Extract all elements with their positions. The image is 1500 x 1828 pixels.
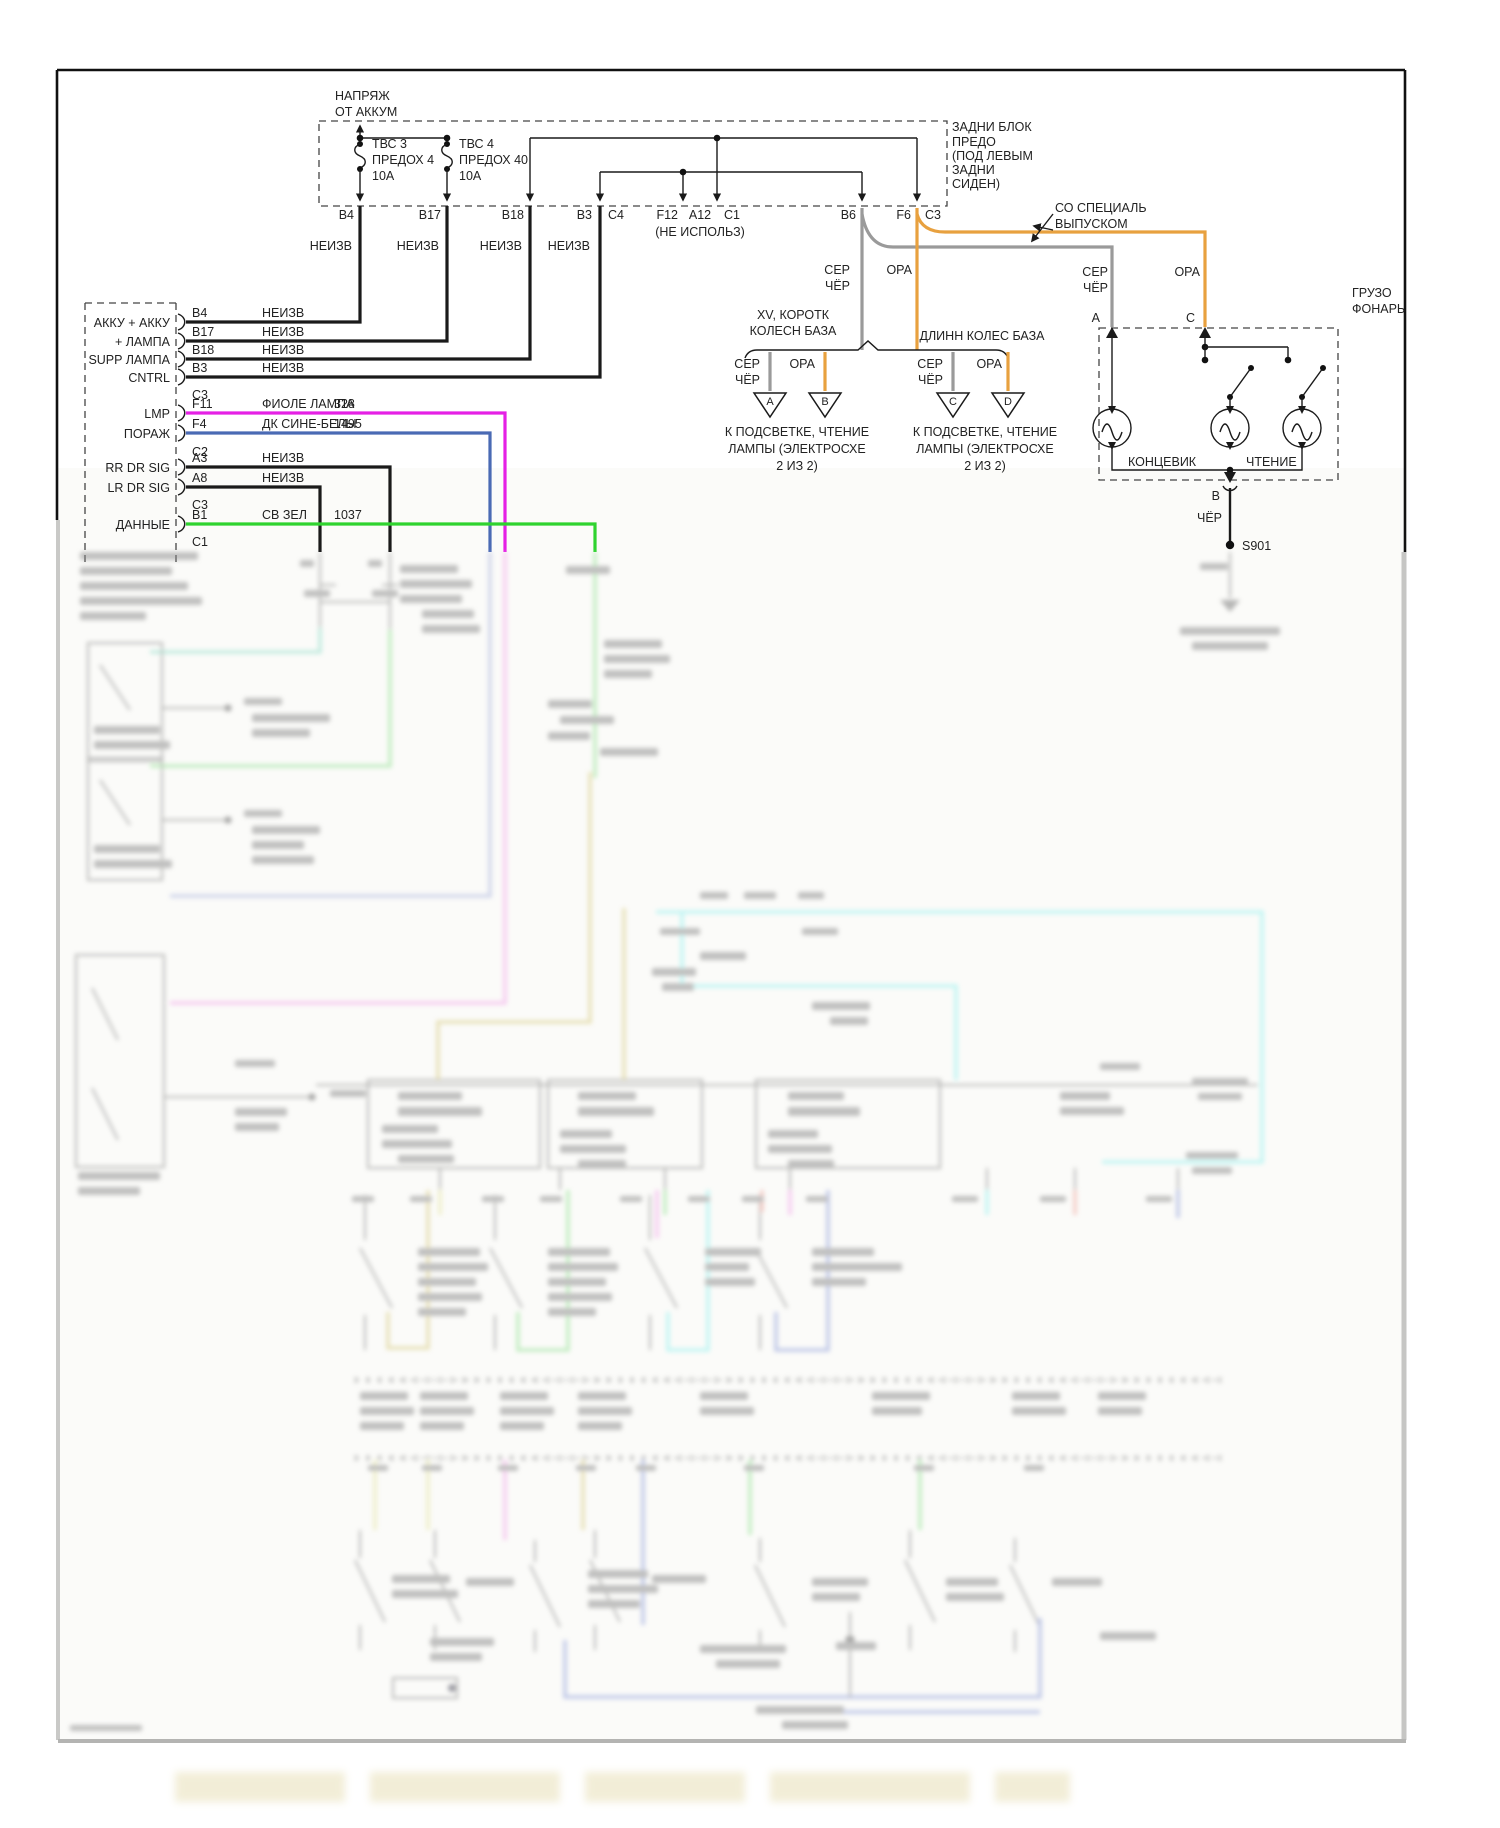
module-pin: B17 [192,325,214,339]
module-row-label: АККУ + АККУ [94,316,170,330]
fuse-tbc4: ТВС 4 ПРЕДОХ 40 10А [442,137,528,200]
module-row-label: CNTRL [128,371,170,385]
wire-color-label: СЕР [1082,265,1108,279]
module-wire: НЕИЗВ [262,451,304,465]
rear-fuse-block: НАПРЯЖ ОТ АККУМ ЗАДНИ БЛОК ПРЕДО (ПОД ЛЕ… [310,89,1033,253]
module-row-label: ДАННЫЕ [116,518,170,532]
wire-color-label: ЧЁР [1197,511,1222,525]
module-circuit: 328 [334,397,355,411]
wire-color-label: ЧЁР [1083,281,1108,295]
module-wire: НЕИЗВ [262,471,304,485]
triangle-letter: A [766,396,774,408]
destination-note: ЛАМПЫ (ЭЛЕКТРОСХЕ [916,442,1053,456]
module-circuit: 1495 [334,417,362,431]
destination-note: К ПОДСВЕТКЕ, ЧТЕНИЕ [725,425,869,439]
pin-f12: F12 [656,208,678,222]
destination-note: ЛАМПЫ (ЭЛЕКТРОСХЕ [728,442,865,456]
reading-label: ЧТЕНИЕ [1246,455,1297,469]
wire-color-label: ОРА [886,263,912,277]
not-used-note: (НЕ ИСПОЛЬЗ) [655,225,745,239]
triangle-letter: C [949,396,957,408]
wire-unknown-label: НЕИЗВ [548,239,590,253]
fuse-tbc4-label: ПРЕДОХ 40 [459,153,528,167]
module-pin: B18 [192,343,214,357]
faded-region-background [58,468,1405,1741]
special-equipment-note: СО СПЕЦИАЛЬ ВЫПУСКОМ [1032,201,1147,241]
module-row-label: + ЛАМПА [115,335,171,349]
wire-color-label: ОРА [789,357,815,371]
wire-b4 [186,206,360,322]
module-pin: A8 [192,471,207,485]
wire-b18 [186,206,530,359]
fuse-tbc4-label: ТВС 4 [459,137,494,151]
fuse-block-title: ЗАДНИ [952,163,995,177]
module-row-label: RR DR SIG [105,461,170,475]
cargo-lamp-title: ГРУЗО [1352,286,1392,300]
pin-a12: A12 [689,208,711,222]
lamp-reading-2 [1283,406,1321,450]
triangle-letter: B [821,396,828,408]
destination-note: 2 ИЗ 2) [964,459,1006,473]
module-circuit: 1037 [334,508,362,522]
fuse-block-title: СИДЕН) [952,177,1000,191]
wire-color-label: ЧЁР [918,373,943,387]
fuse-tbc3-label: 10А [372,169,395,183]
pin-b6: B6 [841,208,856,222]
wire-color-label: ЧЁР [735,373,760,387]
wiring-diagram-page: НАПРЯЖ ОТ АККУМ ЗАДНИ БЛОК ПРЕДО (ПОД ЛЕ… [0,0,1500,1828]
courtesy-label: КОНЦЕВИК [1128,455,1197,469]
module-pin: B3 [192,361,207,375]
wire-unknown-label: НЕИЗВ [310,239,352,253]
pin-c3: C3 [925,208,941,222]
special-note-text: ВЫПУСКОМ [1055,217,1128,231]
cargo-pin-b: В [1212,489,1220,503]
battery-voltage-label: НАПРЯЖ [335,89,390,103]
pin-b17: B17 [419,208,441,222]
fuse-tbc4-label: 10А [459,169,482,183]
watermark-ghost-text [175,1772,1070,1802]
module-pin: A3 [192,451,207,465]
destination-note: К ПОДСВЕТКЕ, ЧТЕНИЕ [913,425,1057,439]
battery-voltage-label: ОТ АККУМ [335,105,397,119]
cargo-pin-a: А [1092,311,1101,325]
wire-unknown-label: НЕИЗВ [480,239,522,253]
module-row-label: LR DR SIG [107,481,170,495]
wire-color-label: ОРА [976,357,1002,371]
short-wheelbase-label: КОЛЕСН БАЗА [750,324,837,338]
pin-c1: C1 [724,208,740,222]
wire-color-label: СЕР [917,357,943,371]
splice-s901: S901 [1242,539,1271,553]
cargo-lamp-title: ФОНАРЬ [1352,302,1405,316]
module-row-label: ПОРАЖ [124,427,171,441]
module-wire: СВ ЗЕЛ [262,508,307,522]
pin-c4: C4 [608,208,624,222]
wire-color-label: СЕР [824,263,850,277]
cargo-pin-c: С [1186,311,1195,325]
wire-color-label: СЕР [734,357,760,371]
fuse-tbc3: ТВС 3 ПРЕДОХ 4 10А [355,137,434,200]
fuse-block-bus-wiring [530,135,917,200]
wiring-diagram-canvas: НАПРЯЖ ОТ АККУМ ЗАДНИ БЛОК ПРЕДО (ПОД ЛЕ… [0,0,1500,1828]
wire-color-label: ОРА [1174,265,1200,279]
wire-b3 [186,206,600,377]
fuse-block-pins: B4 B17 B18 B3 C4 F12 A12 C1 B6 F6 C3 (НЕ… [310,208,941,253]
pin-b3: B3 [577,208,592,222]
fuse-tbc3-label: ТВС 3 [372,137,407,151]
module-wire: НЕИЗВ [262,361,304,375]
module-wire: НЕИЗВ [262,325,304,339]
module-row-label: LMP [144,407,170,421]
fuse-block-title: (ПОД ЛЕВЫМ [952,149,1033,163]
fuse-block-title: ПРЕДО [952,135,996,149]
pin-f6: F6 [896,208,911,222]
brace [745,341,1008,358]
special-note-text: СО СПЕЦИАЛЬ [1055,201,1147,215]
pin-b4: B4 [339,208,354,222]
destination-note: 2 ИЗ 2) [776,459,818,473]
wire-unknown-label: НЕИЗВ [397,239,439,253]
fuse-tbc3-label: ПРЕДОХ 4 [372,153,434,167]
module-pin: B4 [192,306,207,320]
module-pin: C1 [192,535,208,549]
long-wheelbase-label: ДЛИНН КОЛЕС БАЗА [920,329,1046,343]
module-wire: НЕИЗВ [262,306,304,320]
short-wheelbase-label: XV, КОРОТК [757,308,830,322]
fuse-block-title: ЗАДНИ БЛОК [952,120,1032,134]
module-pin: B1 [192,508,207,522]
module-wire: НЕИЗВ [262,343,304,357]
wheelbase-section: XV, КОРОТК КОЛЕСН БАЗА ДЛИНН КОЛЕС БАЗА … [725,308,1057,473]
module-pin: F11 [192,397,213,411]
lamp-reading-1 [1211,406,1249,450]
module-row-label: SUPP ЛАМПА [88,353,170,367]
triangle-letter: D [1004,396,1012,408]
wire-color-label: ЧЁР [825,279,850,293]
module-pin: F4 [192,417,207,431]
pin-b18: B18 [502,208,524,222]
